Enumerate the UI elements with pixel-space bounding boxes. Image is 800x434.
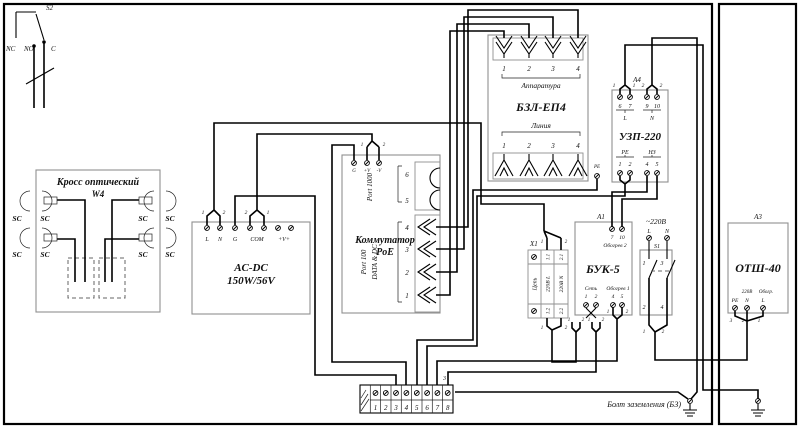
- acdc-title: AC-DC: [233, 262, 268, 274]
- cable-pin: 2: [602, 318, 605, 323]
- s2-c-label: C: [51, 45, 56, 53]
- s1-contact: 2: [643, 305, 646, 311]
- poe-port1000-label: Port 1000: [366, 172, 374, 202]
- cable-pin: 1: [613, 83, 616, 89]
- wire-ground-bolt-bus: [455, 392, 688, 399]
- ground-bolt-label: Болт заземления (БЗ): [606, 400, 681, 409]
- component-s2-door-switch: S2 NC NO C: [5, 4, 56, 53]
- strip-number: 3: [393, 404, 398, 412]
- buk-designator: А1: [596, 213, 605, 221]
- strip-number: 8: [446, 404, 450, 412]
- ground-symbol-icon: [683, 404, 697, 416]
- w4-designator: W4: [92, 189, 105, 199]
- cable-pin: 2: [660, 83, 663, 89]
- strip-number: 4: [405, 404, 409, 412]
- sc-label: SC: [138, 214, 148, 223]
- bzl-bottom-group-label: Линия: [530, 121, 551, 130]
- buk-term: 7: [611, 235, 614, 241]
- sc-label: SC: [12, 250, 22, 259]
- ground-bolt-icon: [688, 399, 693, 404]
- bzl-top-port: 1: [502, 65, 506, 73]
- x1-row2-label: 220В N: [559, 275, 565, 292]
- otsh-term-pe: PE: [731, 298, 739, 304]
- buk-title: БУК-5: [585, 262, 620, 276]
- acdc-term-v: +V+: [278, 237, 290, 243]
- buk-term: 10: [619, 235, 625, 241]
- cable-pin: 3: [730, 319, 733, 324]
- sc-label: SC: [12, 214, 22, 223]
- uzp-term: 5: [656, 162, 659, 168]
- x1-row1-label: 220В L: [546, 276, 552, 292]
- cable-pin: 2: [662, 330, 665, 335]
- s1-n-label: N: [664, 229, 670, 235]
- strip-hatch: [361, 390, 369, 411]
- acdc-power: 150W/56V: [227, 275, 276, 287]
- ground-bolt-icon: [756, 399, 761, 404]
- cable-pin: 1: [633, 83, 636, 89]
- strip-number: 6: [425, 404, 429, 412]
- x1-pin-1-1: 1.1: [547, 254, 552, 260]
- s1-contact: 4: [661, 304, 664, 311]
- strip-number: 2: [384, 404, 388, 412]
- acdc-term-g: G: [233, 237, 238, 243]
- x1-pin-2-2: 2.2: [560, 307, 565, 314]
- x1-header: Цепь: [533, 277, 539, 291]
- acdc-term-l: L: [204, 237, 209, 243]
- cable-pin: 1: [588, 318, 591, 323]
- cable-pin: 1: [541, 240, 544, 245]
- cable-pin: 2: [642, 83, 645, 89]
- otsh-heat-label: Обогр.: [759, 290, 773, 295]
- s2-no-label: NO: [23, 45, 34, 53]
- uzp-term: 4: [646, 161, 649, 168]
- cable-pin: 1: [758, 319, 761, 324]
- cable-pin: 1: [643, 330, 646, 335]
- uzp-term: 2: [629, 162, 632, 168]
- strip-number: 5: [415, 404, 419, 412]
- schematic-canvas: S2 NC NO C Кросс оптический W4 SC SC SC …: [0, 0, 800, 429]
- s1-contact: 3: [660, 261, 664, 267]
- uzp-term: 1: [619, 162, 622, 168]
- uzp-term: 9: [646, 104, 649, 110]
- poe-port3: 3: [404, 246, 409, 254]
- bzl-title: БЗЛ-ЕП4: [515, 100, 566, 114]
- otsh-term-n: N: [744, 298, 749, 304]
- uzp-term: 10: [654, 104, 660, 110]
- cable-pin: 1: [202, 210, 205, 216]
- poe-port100-label-2: DATA & DC: [371, 244, 379, 281]
- poe-term-g: G: [352, 169, 356, 174]
- wire-number-3: 3: [442, 376, 446, 382]
- uzp-l-group: L: [622, 116, 627, 122]
- sc-label: SC: [165, 214, 175, 223]
- uzp-term: 6: [619, 104, 622, 110]
- buk-net-label: Сеть: [585, 286, 598, 292]
- poe-port4: 4: [405, 224, 409, 232]
- w4-title: Кросс оптический: [56, 177, 140, 188]
- buk-term: 1: [585, 294, 588, 300]
- cable-pin: 2: [223, 210, 226, 216]
- wire-bzl-pe: [417, 179, 597, 385]
- sc-label: SC: [165, 250, 175, 259]
- acdc-term-com: COM: [250, 237, 264, 243]
- s2-designator: S2: [46, 4, 54, 12]
- uzp-nz-group: НЗ: [647, 150, 655, 156]
- sc-label: SC: [40, 250, 50, 259]
- ground-symbol-icon: [751, 404, 765, 416]
- strip-number: 1: [374, 404, 378, 412]
- buk-heat1-label: Обогрев 1: [606, 285, 630, 292]
- x1-designator: X1: [529, 240, 538, 248]
- wire-buk-net-cables: [448, 322, 600, 385]
- cable-pin: 2: [582, 318, 585, 323]
- bzl-top-port: 4: [576, 65, 580, 73]
- wire-s2-links: [16, 12, 44, 40]
- buk-term: 2: [595, 294, 598, 300]
- x1-pin-1-2: 1.2: [547, 307, 552, 314]
- block-poe-switch: [342, 155, 440, 313]
- wire-s2-twist-mark: [26, 68, 54, 84]
- bzl-bottom-port: 4: [576, 142, 580, 150]
- x1-pin-2-1: 2.1: [560, 254, 565, 260]
- buk-term: 5: [621, 294, 624, 300]
- cable-pin: 1: [541, 326, 544, 331]
- poe-port100-label-1: Port 100: [360, 249, 368, 275]
- component-x1: X1 Цепь 220В L 220В N 1.1 2.1 1.2 2.2 1 …: [529, 240, 568, 331]
- cable-pin: 2: [565, 240, 568, 245]
- cable-pin: 1: [607, 310, 610, 315]
- buk-term: 4: [612, 293, 615, 300]
- s1-designator: S1: [654, 244, 660, 250]
- s1-supply-label: ~220В: [646, 217, 666, 226]
- otsh-v-label: 220В: [742, 290, 753, 295]
- bzl-bottom-port: 1: [502, 142, 506, 150]
- wiring-diagram-page: S2 NC NO C Кросс оптический W4 SC SC SC …: [0, 0, 800, 429]
- otsh-title: ОТШ-40: [735, 261, 781, 275]
- poe-port5: 5: [405, 197, 409, 205]
- s1-l-label: L: [646, 229, 651, 235]
- otsh-designator: А3: [753, 213, 762, 221]
- bzl-bottom-port: 3: [550, 142, 555, 150]
- strip-number: 7: [436, 404, 440, 412]
- cable-pin: 2: [383, 143, 386, 148]
- bzl-top-port: 2: [527, 65, 531, 73]
- poe-port1: 1: [405, 292, 409, 300]
- buk-heat2-label: Обогрев 2: [603, 242, 627, 249]
- cable-pin: 1: [568, 318, 571, 323]
- bzl-bottom-port: 2: [527, 142, 531, 150]
- bzl-pe-label: PE: [593, 165, 600, 170]
- poe-title-1: Коммутатор: [354, 235, 415, 246]
- bzl-top-port: 3: [550, 65, 555, 73]
- cable-pin: 1: [361, 143, 364, 148]
- cable-pin: 1: [267, 210, 270, 216]
- sc-label: SC: [138, 250, 148, 259]
- s2-nc-label: NC: [5, 45, 16, 53]
- poe-port6: 6: [405, 171, 409, 179]
- sc-label: SC: [40, 214, 50, 223]
- uzp-title: УЗП-220: [619, 131, 661, 143]
- s1-contact: 1: [643, 261, 646, 267]
- cable-pin: 2: [245, 210, 248, 216]
- otsh-term-l: L: [760, 298, 764, 304]
- bzl-top-group-label: Аппаратура: [520, 81, 561, 90]
- cable-pin: 2: [565, 326, 568, 331]
- ground-bolts: Болт заземления (БЗ): [606, 399, 765, 416]
- poe-port2: 2: [405, 269, 409, 277]
